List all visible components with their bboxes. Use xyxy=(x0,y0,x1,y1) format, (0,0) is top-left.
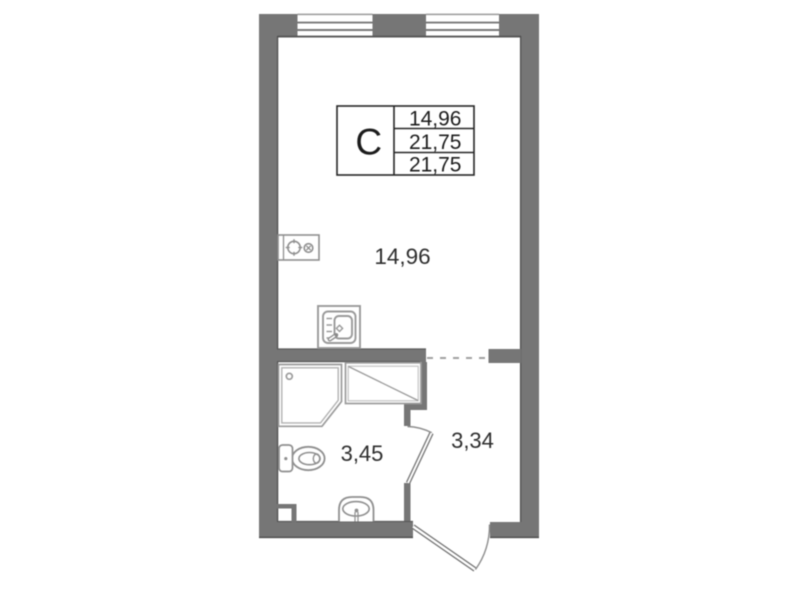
svg-text:С: С xyxy=(355,121,382,162)
svg-text:3,45: 3,45 xyxy=(341,441,384,466)
svg-text:21,75: 21,75 xyxy=(409,131,462,154)
svg-text:21,75: 21,75 xyxy=(409,153,462,176)
svg-text:14,96: 14,96 xyxy=(409,108,462,131)
svg-text:3,34: 3,34 xyxy=(451,428,494,453)
svg-text:14,96: 14,96 xyxy=(374,244,430,269)
